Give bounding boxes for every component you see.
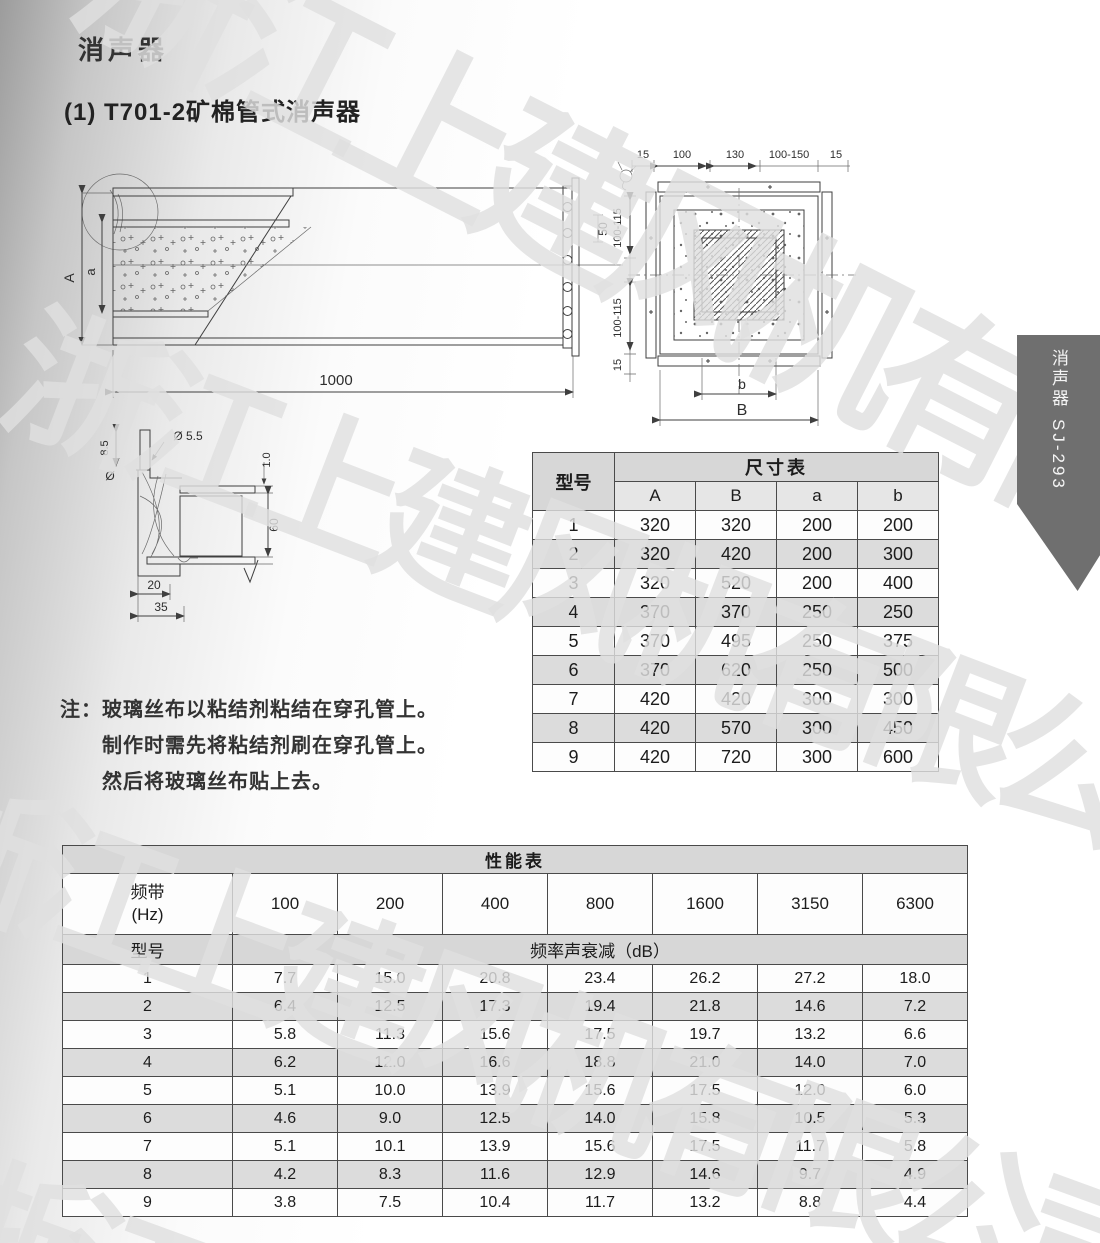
table-cell: 12.5 (443, 1105, 548, 1133)
table-cell: 420 (615, 685, 696, 714)
perf-table-title: 性能表 (63, 846, 968, 874)
dims-left: 100-115 100-115 15 (612, 192, 636, 382)
table-cell: 420 (615, 743, 696, 772)
table-cell: 420 (696, 685, 777, 714)
table-cell: 2 (63, 993, 233, 1021)
table-row: 1320320200200 (533, 511, 939, 540)
dim-flange-group: 20 35 (138, 578, 184, 622)
table-cell: 21.0 (653, 1049, 758, 1077)
dim-inner-width: b (738, 376, 746, 392)
page-title: 消声器 (78, 30, 168, 67)
table-cell: 7 (533, 685, 615, 714)
table-cell: 600 (858, 743, 939, 772)
table-cell: 320 (696, 511, 777, 540)
table-cell: 21.8 (653, 993, 758, 1021)
dim-left-2: 100-115 (612, 298, 624, 338)
table-row: 84.28.311.612.914.69.74.9 (63, 1161, 968, 1189)
perf-band-header: 频带 (Hz) (63, 874, 233, 935)
table-row: 93.87.510.411.713.28.84.4 (63, 1189, 968, 1217)
dim-diam-symbol: Ø (105, 469, 114, 483)
table-cell: 13.9 (443, 1077, 548, 1105)
perf-freq: 6300 (863, 874, 968, 935)
note-line: 然后将玻璃丝布贴上去。 (102, 771, 333, 793)
table-cell: 11.7 (548, 1189, 653, 1217)
table-cell: 420 (615, 714, 696, 743)
table-row: 2320420200300 (533, 540, 939, 569)
table-cell: 9 (63, 1189, 233, 1217)
dim-top-4: 100-150 (769, 149, 809, 161)
table-cell: 4.2 (233, 1161, 338, 1189)
table-cell: 15.6 (443, 1021, 548, 1049)
dim-thickness-group: 60 (267, 494, 281, 556)
perf-freq: 400 (443, 874, 548, 935)
surface-finish-mark (244, 560, 258, 582)
table-cell: 620 (696, 656, 777, 685)
table-cell: 8 (533, 714, 615, 743)
table-cell: 18.8 (548, 1049, 653, 1077)
dim-top-3: 130 (726, 149, 744, 161)
dim-liner-label: 1.0 (261, 452, 273, 467)
dim-col-B: B (696, 482, 777, 511)
table-cell: 16.6 (443, 1049, 548, 1077)
table-cell: 5.1 (233, 1133, 338, 1161)
dim-liner-group: 1.0 (261, 452, 273, 484)
table-cell: 1 (63, 965, 233, 993)
table-cell: 375 (858, 627, 939, 656)
table-cell: 10.1 (338, 1133, 443, 1161)
dim-length: 1000 (113, 350, 573, 398)
table-cell: 4.4 (863, 1189, 968, 1217)
table-row: 55.110.013.915.617.512.06.0 (63, 1077, 968, 1105)
corner-detail-drawing: 8.5 Ø Ø 5.5 1.0 60 20 35 (92, 426, 347, 666)
perf-freq: 1600 (653, 874, 758, 935)
dim-label-A: A (61, 273, 77, 283)
table-cell: 3 (533, 569, 615, 598)
table-cell: 7.7 (233, 965, 338, 993)
dim-top-2: 100 (673, 149, 691, 161)
table-cell: 320 (615, 540, 696, 569)
note-block: 注： 玻璃丝布以粘结剂粘结在穿孔管上。 制作时需先将粘结剂刷在穿孔管上。 然后将… (60, 692, 490, 800)
table-row: 26.412.517.319.421.814.67.2 (63, 993, 968, 1021)
table-cell: 6.0 (863, 1077, 968, 1105)
duct-body (113, 188, 623, 345)
dim-outer-width: B (737, 402, 748, 419)
table-cell: 5 (533, 627, 615, 656)
side-tab-code: SJ-293 (1048, 419, 1068, 491)
dim-wall-label: 8.5 (99, 440, 111, 455)
table-cell: 420 (696, 540, 777, 569)
table-cell: 5.3 (863, 1105, 968, 1133)
table-cell: 14.6 (758, 993, 863, 1021)
table-cell: 450 (858, 714, 939, 743)
table-cell: 495 (696, 627, 777, 656)
table-row: 75.110.113.915.617.511.75.8 (63, 1133, 968, 1161)
table-cell: 11.7 (758, 1133, 863, 1161)
table-cell: 570 (696, 714, 777, 743)
table-cell: 6.6 (863, 1021, 968, 1049)
performance-table: 性能表 频带 (Hz) 100 200 400 800 1600 3150 63… (62, 845, 968, 1217)
note-line: 玻璃丝布以粘结剂粘结在穿孔管上。 (102, 699, 438, 721)
table-cell: 17.5 (653, 1133, 758, 1161)
table-cell: 11.6 (443, 1161, 548, 1189)
table-cell: 15.0 (338, 965, 443, 993)
table-cell: 300 (858, 540, 939, 569)
table-cell: 5.8 (863, 1133, 968, 1161)
detail-structure (136, 430, 273, 622)
catalog-page: 消声器 (1) T701-2矿棉管式消声器 (0, 0, 1100, 1243)
side-tab-product: 消声器 (1049, 349, 1068, 409)
table-cell: 5 (63, 1077, 233, 1105)
table-cell: 17.5 (548, 1021, 653, 1049)
table-cell: 250 (858, 598, 939, 627)
table-cell: 6.2 (233, 1049, 338, 1077)
table-cell: 1 (533, 511, 615, 540)
table-cell: 320 (615, 511, 696, 540)
table-row: 64.69.012.514.015.810.55.3 (63, 1105, 968, 1133)
table-cell: 5.1 (233, 1077, 338, 1105)
table-cell: 2 (533, 540, 615, 569)
table-cell: 5.8 (233, 1021, 338, 1049)
dim-flange-b-label: 35 (154, 600, 168, 614)
cross-section-drawing: 15 100 130 100-150 15 100-115 100-115 15… (612, 142, 907, 437)
table-cell: 12.5 (338, 993, 443, 1021)
table-cell: 18.0 (863, 965, 968, 993)
table-row: 17.715.020.823.426.227.218.0 (63, 965, 968, 993)
table-cell: 250 (777, 598, 858, 627)
table-cell: 10.0 (338, 1077, 443, 1105)
table-cell: 6.4 (233, 993, 338, 1021)
table-cell: 720 (696, 743, 777, 772)
dim-col-a: a (777, 482, 858, 511)
dim-wall-group: 8.5 Ø (99, 432, 116, 483)
table-cell: 14.6 (653, 1161, 758, 1189)
dimension-table: 型号 尺寸表 A B a b 1320320200200 23204202003… (532, 452, 939, 772)
table-cell: 6 (533, 656, 615, 685)
table-cell: 13.9 (443, 1133, 548, 1161)
perf-freq: 200 (338, 874, 443, 935)
dim-table-model-header: 型号 (533, 453, 615, 511)
table-cell: 13.2 (653, 1189, 758, 1217)
dims-top: 15 100 130 100-150 15 (632, 149, 850, 172)
table-cell: 250 (777, 627, 858, 656)
dim-col-A: A (615, 482, 696, 511)
table-cell: 320 (615, 569, 696, 598)
side-view-drawing: A a 1000 50 (58, 160, 628, 422)
dim-label-hole-pitch: 50 (596, 222, 610, 236)
table-cell: 200 (777, 569, 858, 598)
table-cell: 200 (777, 540, 858, 569)
perf-freq: 3150 (758, 874, 863, 935)
table-cell: 400 (858, 569, 939, 598)
dim-thickness-label: 60 (267, 518, 281, 532)
table-cell: 250 (777, 656, 858, 685)
section-title: (1) T701-2矿棉管式消声器 (64, 92, 361, 127)
table-cell: 4 (63, 1049, 233, 1077)
section-side-tab: 消声器SJ-293 (1017, 335, 1100, 591)
table-cell: 20.8 (443, 965, 548, 993)
table-row: 7420420300300 (533, 685, 939, 714)
table-cell: 4 (533, 598, 615, 627)
table-row: 35.811.315.617.519.713.26.6 (63, 1021, 968, 1049)
table-cell: 200 (777, 511, 858, 540)
table-cell: 300 (777, 685, 858, 714)
note-line: 制作时需先将粘结剂刷在穿孔管上。 (102, 735, 438, 757)
table-row: 5370495250375 (533, 627, 939, 656)
table-cell: 370 (615, 627, 696, 656)
table-cell: 15.6 (548, 1133, 653, 1161)
table-cell: 300 (777, 743, 858, 772)
table-cell: 500 (858, 656, 939, 685)
perf-freq: 100 (233, 874, 338, 935)
table-row: 3320520200400 (533, 569, 939, 598)
dim-top-5: 15 (830, 149, 842, 161)
table-cell: 370 (696, 598, 777, 627)
table-cell: 10.5 (758, 1105, 863, 1133)
table-cell: 8.8 (758, 1189, 863, 1217)
table-cell: 300 (858, 685, 939, 714)
table-cell: 7.2 (863, 993, 968, 1021)
table-cell: 9.7 (758, 1161, 863, 1189)
table-cell: 9.0 (338, 1105, 443, 1133)
dim-left-1: 100-115 (612, 208, 624, 248)
table-cell: 3 (63, 1021, 233, 1049)
note-label: 注： (60, 692, 102, 800)
table-cell: 12.0 (758, 1077, 863, 1105)
table-cell: 19.4 (548, 993, 653, 1021)
dim-a: a (83, 222, 102, 313)
table-row: 6370620250500 (533, 656, 939, 685)
dim-left-3: 15 (612, 359, 624, 371)
flange (563, 178, 579, 356)
table-cell: 7 (63, 1133, 233, 1161)
table-cell: 27.2 (758, 965, 863, 993)
dim-col-b: b (858, 482, 939, 511)
perf-attenuation-header: 频率声衰减（dB） (233, 935, 968, 965)
table-cell: 26.2 (653, 965, 758, 993)
table-cell: 520 (696, 569, 777, 598)
table-row: 8420570300450 (533, 714, 939, 743)
perf-freq: 800 (548, 874, 653, 935)
table-cell: 4.9 (863, 1161, 968, 1189)
table-cell: 8.3 (338, 1161, 443, 1189)
dim-hole-label: Ø 5.5 (173, 429, 203, 443)
table-row: 46.212.016.618.821.014.07.0 (63, 1049, 968, 1077)
table-cell: 300 (777, 714, 858, 743)
table-cell: 23.4 (548, 965, 653, 993)
perf-model-header: 型号 (63, 935, 233, 965)
dim-top-1: 15 (637, 149, 649, 161)
table-cell: 11.3 (338, 1021, 443, 1049)
table-cell: 12.0 (338, 1049, 443, 1077)
table-cell: 3.8 (233, 1189, 338, 1217)
table-cell: 7.0 (863, 1049, 968, 1077)
dim-label-length: 1000 (319, 372, 352, 389)
table-cell: 8 (63, 1161, 233, 1189)
dim-hole-pitch: 50 (593, 215, 610, 242)
dim-table-title: 尺寸表 (615, 453, 939, 482)
dim-label-a: a (83, 268, 98, 276)
table-cell: 13.2 (758, 1021, 863, 1049)
dim-flange-a-label: 20 (147, 578, 161, 592)
table-cell: 4.6 (233, 1105, 338, 1133)
table-row: 4370370250250 (533, 598, 939, 627)
table-cell: 14.0 (548, 1105, 653, 1133)
table-cell: 15.6 (548, 1077, 653, 1105)
table-cell: 17.3 (443, 993, 548, 1021)
table-cell: 370 (615, 656, 696, 685)
table-cell: 10.4 (443, 1189, 548, 1217)
table-cell: 7.5 (338, 1189, 443, 1217)
table-cell: 6 (63, 1105, 233, 1133)
table-row: 9420720300600 (533, 743, 939, 772)
table-cell: 15.8 (653, 1105, 758, 1133)
dim-hole-group: Ø 5.5 (152, 429, 203, 460)
table-cell: 12.9 (548, 1161, 653, 1189)
table-cell: 14.0 (758, 1049, 863, 1077)
table-cell: 17.5 (653, 1077, 758, 1105)
table-cell: 200 (858, 511, 939, 540)
table-cell: 370 (615, 598, 696, 627)
table-cell: 9 (533, 743, 615, 772)
table-cell: 19.7 (653, 1021, 758, 1049)
